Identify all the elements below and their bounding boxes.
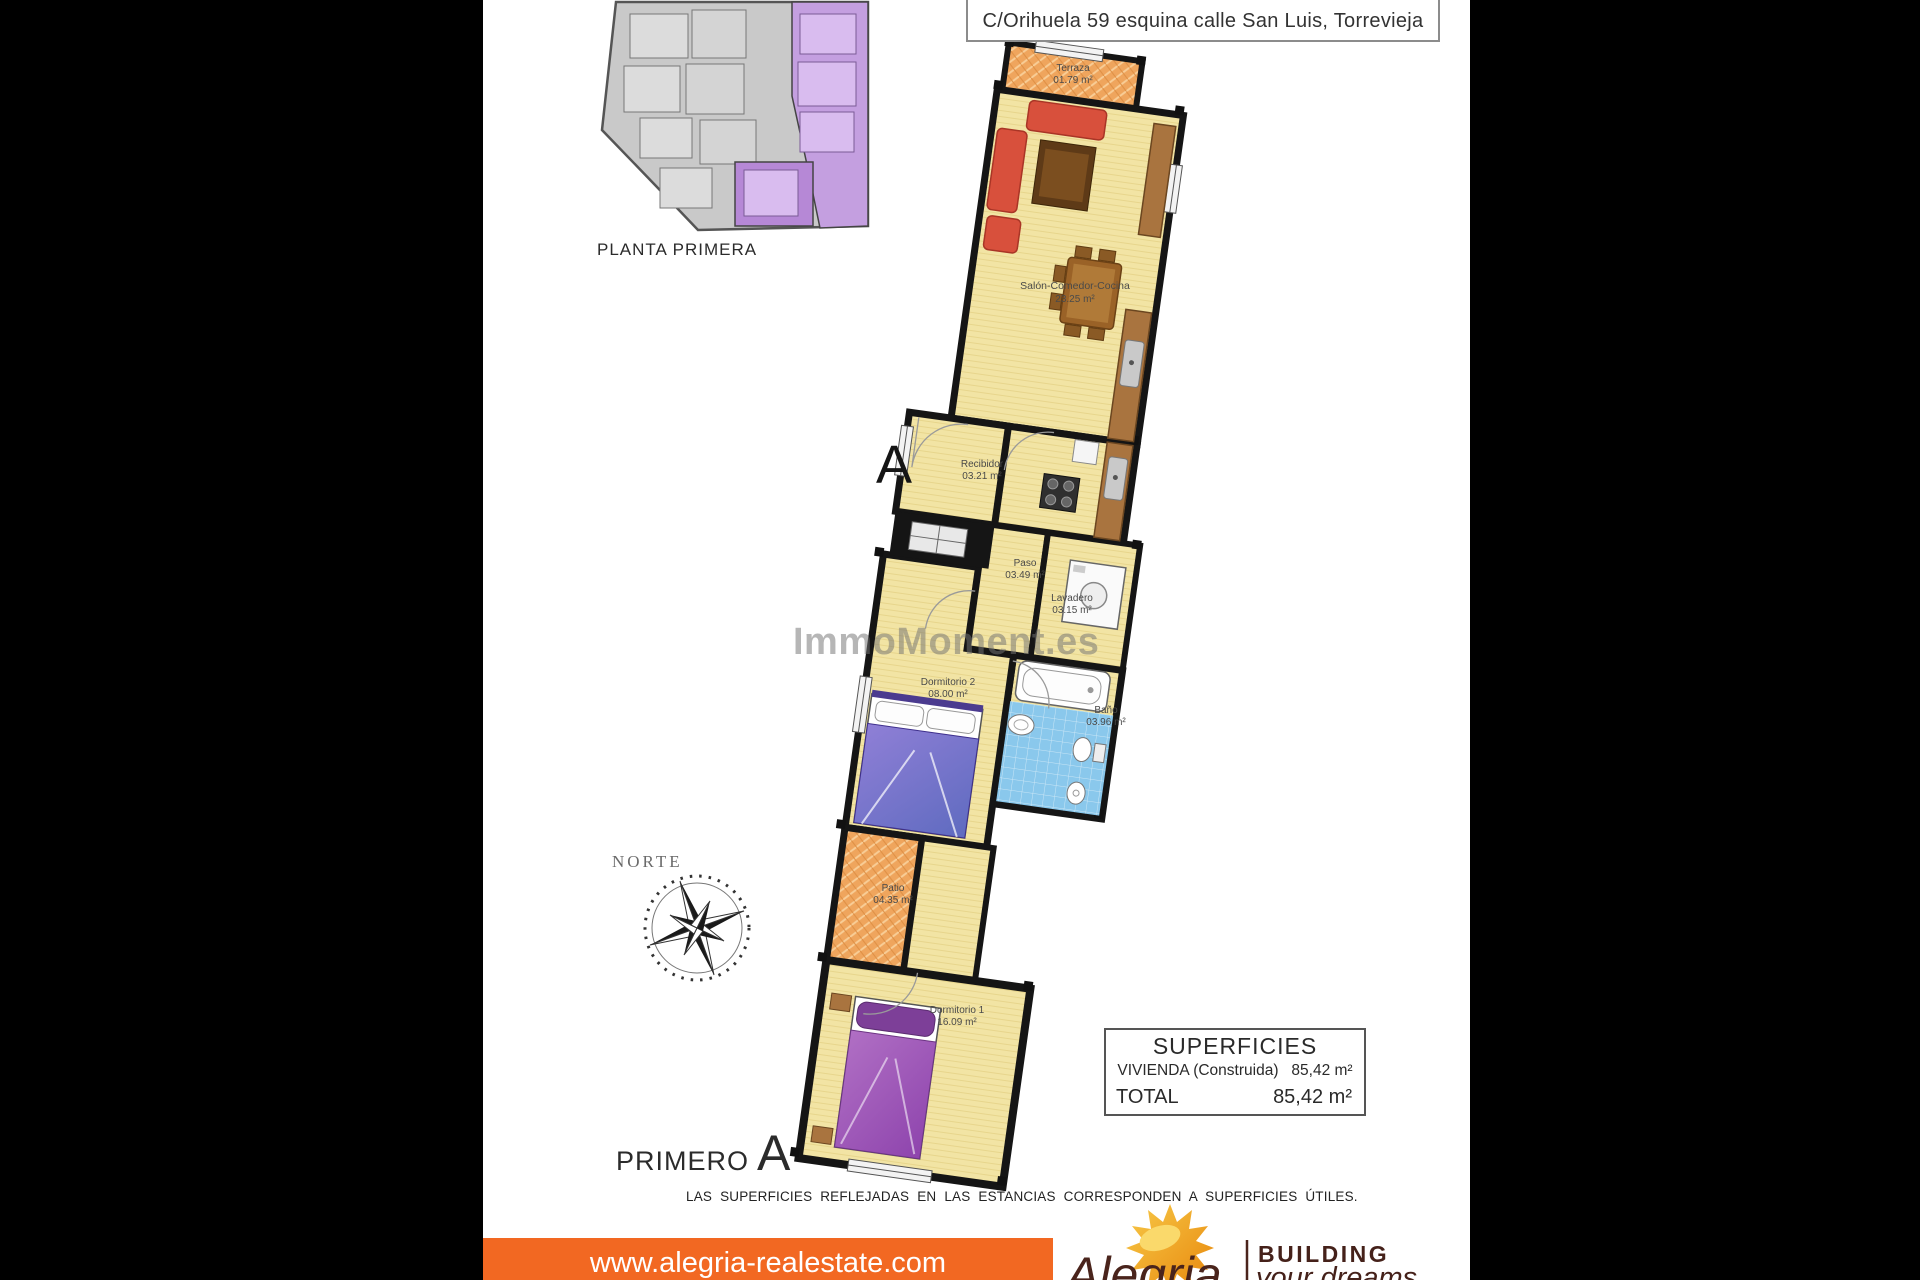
surfaces-total-label: TOTAL [1116, 1086, 1179, 1109]
address-title-box: C/Orihuela 59 esquina calle San Luis, To… [966, 0, 1440, 42]
section-marker: A [876, 438, 912, 492]
room-label-lavadero: Lavadero 03.15 m² [1051, 593, 1093, 616]
room-pasillo2 [904, 838, 994, 981]
floor-unit-label: PRIMERO A [616, 1124, 790, 1182]
surfaces-title: SUPERFICIES [1106, 1033, 1364, 1060]
surfaces-total-value: 85,42 m² [1273, 1086, 1352, 1109]
compass-label: NORTE [612, 852, 683, 872]
svg-text:Dormitorio 1: Dormitorio 1 [930, 1005, 985, 1016]
svg-text:Patio: Patio [882, 883, 905, 894]
website-url: www.alegria-realestate.com [590, 1247, 946, 1280]
brand-wordmark: Alegria [1063, 1247, 1222, 1280]
svg-text:01.79 m²: 01.79 m² [1053, 75, 1093, 86]
room-label-dormitorio2: Dormitorio 2 08.00 m² [921, 677, 976, 700]
svg-text:Lavadero: Lavadero [1051, 593, 1093, 604]
address-title: C/Orihuela 59 esquina calle San Luis, To… [983, 10, 1424, 33]
room-label-dormitorio1: Dormitorio 1 16.09 m² [930, 1005, 985, 1028]
svg-text:08.00 m²: 08.00 m² [928, 689, 968, 700]
nightstand-icon [811, 1126, 833, 1145]
svg-text:Baño: Baño [1094, 705, 1118, 716]
svg-text:16.09 m²: 16.09 m² [937, 1017, 977, 1028]
svg-text:23.25 m²: 23.25 m² [1055, 294, 1095, 305]
svg-text:03.15 m²: 03.15 m² [1052, 605, 1092, 616]
disclaimer-text: LAS SUPERFICIES REFLEJADAS EN LAS ESTANC… [686, 1189, 1358, 1204]
unit-letter: A [757, 1124, 790, 1182]
room-label-terraza: Terraza 01.79 m² [1053, 63, 1093, 86]
tagline-line2: your dreams [1254, 1262, 1417, 1280]
brand-logo: Alegria BUILDING your dreams [1063, 1204, 1417, 1280]
website-banner: www.alegria-realestate.com [483, 1238, 1053, 1280]
svg-text:03.96 m²: 03.96 m² [1086, 717, 1126, 728]
svg-text:Recibidor: Recibidor [961, 459, 1004, 470]
svg-text:Terraza: Terraza [1056, 63, 1090, 74]
svg-text:Paso: Paso [1014, 558, 1037, 569]
surfaces-vivienda-row: VIVIENDA (Construida) 85,42 m² [1106, 1062, 1364, 1080]
surfaces-total-row: TOTAL 85,42 m² [1106, 1080, 1364, 1109]
watermark: ImmoMoment.es [793, 621, 1099, 664]
svg-text:03.21 m²: 03.21 m² [962, 471, 1002, 482]
site-plan-label: PLANTA PRIMERA [597, 240, 757, 260]
svg-text:Salón-Comedor-Cocina: Salón-Comedor-Cocina [1020, 280, 1130, 292]
compass-rose-icon [645, 876, 749, 980]
site-plan-thumbnail [602, 2, 868, 230]
floor-word: PRIMERO [616, 1146, 749, 1177]
page-canvas: Terraza 01.79 m² Salón-Comedor-Cocina 23… [0, 0, 1920, 1280]
armchair-icon [983, 215, 1021, 253]
svg-text:04.35 m²: 04.35 m² [873, 895, 913, 906]
stove-icon [1039, 474, 1079, 513]
bedroom2-bed [854, 690, 984, 838]
surfaces-vivienda-value: 85,42 m² [1291, 1062, 1352, 1079]
surfaces-table: SUPERFICIES VIVIENDA (Construida) 85,42 … [1104, 1028, 1366, 1116]
nightstand-icon [830, 993, 852, 1012]
surfaces-vivienda-label: VIVIENDA (Construida) [1117, 1062, 1278, 1079]
svg-text:03.49 m²: 03.49 m² [1005, 570, 1045, 581]
svg-text:Dormitorio 2: Dormitorio 2 [921, 677, 976, 688]
room-label-recibidor: Recibidor 03.21 m² [961, 459, 1004, 482]
